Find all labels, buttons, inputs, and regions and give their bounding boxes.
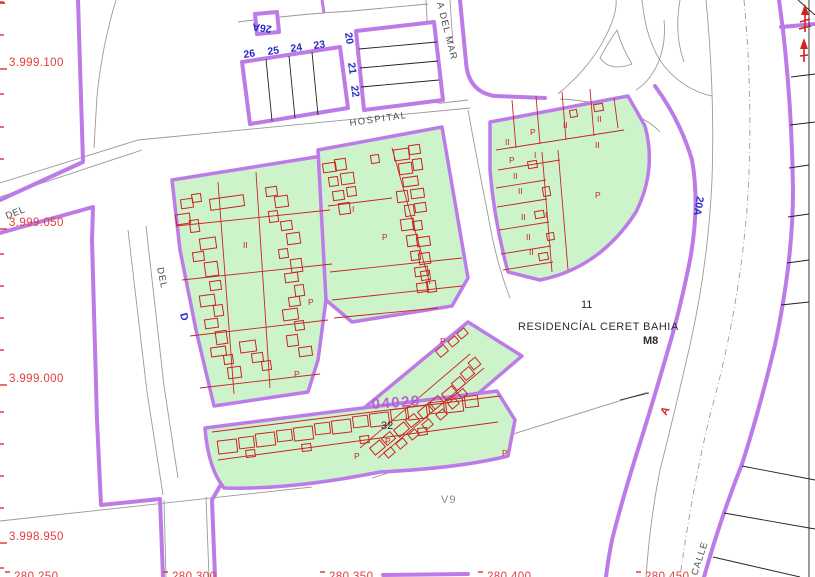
v9-parcel-label: V9 (441, 494, 456, 506)
p-label: P (440, 336, 446, 346)
parcel-25-label: 25 (267, 44, 280, 58)
p-label: P (294, 369, 300, 379)
floor-label: I (534, 150, 536, 160)
parcel-32-label: 32 (381, 420, 393, 432)
x-axis-label-280250: 280.250 (14, 571, 58, 577)
floor-label: I (545, 210, 547, 220)
p-label: P (354, 451, 360, 461)
floor-label: II (597, 114, 602, 124)
parcel-block-20-22[interactable] (356, 22, 443, 110)
floor-label: I (352, 204, 354, 214)
green-block-middle[interactable] (318, 127, 468, 322)
p-label: P (502, 448, 508, 458)
p-label: P (509, 155, 515, 165)
parcel-22-label: 22 (348, 85, 362, 98)
p-label: P (595, 190, 601, 200)
floor-label: II (521, 212, 526, 222)
parcel-23-label: 23 (313, 38, 326, 52)
x-axis-label-280350: 280.350 (329, 571, 373, 577)
floor-label: II (529, 247, 534, 257)
y-axis-label-3999050: 3.999.050 (9, 217, 64, 229)
p-label: P (382, 232, 388, 242)
y-axis-label-3999100: 3.999.100 (9, 57, 64, 69)
floor-label: II (505, 137, 510, 147)
parcel-ref-04029: 04029 (371, 393, 421, 413)
floor-label: II (513, 171, 518, 181)
residencial-ceret-bahia-label: RESIDENCÍAL CERET BAHIA (518, 320, 679, 333)
p-label: P (530, 127, 536, 137)
parcel-block-26-23[interactable] (242, 47, 348, 124)
floor-label: II (595, 140, 600, 150)
parcel-21-label: 21 (345, 62, 359, 75)
parcel-20-label: 20 (342, 32, 356, 45)
p-label: P (385, 436, 391, 446)
parcel-24-label: 24 (290, 41, 303, 55)
x-axis-label-280450: 280.450 (645, 571, 689, 577)
floor-label: II (563, 120, 568, 130)
floor-label: II (518, 186, 523, 196)
floor-label: II (526, 232, 531, 242)
x-axis-label-280400: 280.400 (487, 571, 531, 577)
x-axis-label-280300: 280.300 (172, 571, 216, 577)
floor-label: II (243, 240, 248, 250)
parcel-26-label: 26 (243, 47, 256, 61)
y-axis-label-3998950: 3.998.950 (9, 531, 64, 543)
map-canvas[interactable]: 3.999.1003.999.0503.999.0003.998.950280.… (0, 0, 815, 577)
m8-label: M8 (643, 335, 658, 347)
y-axis-label-3999000: 3.999.000 (9, 373, 64, 385)
p-label: P (308, 297, 314, 307)
parcel-11-label: 11 (581, 299, 592, 311)
cadastral-map-viewport[interactable]: 3.999.1003.999.0503.999.0003.998.950280.… (0, 0, 815, 577)
